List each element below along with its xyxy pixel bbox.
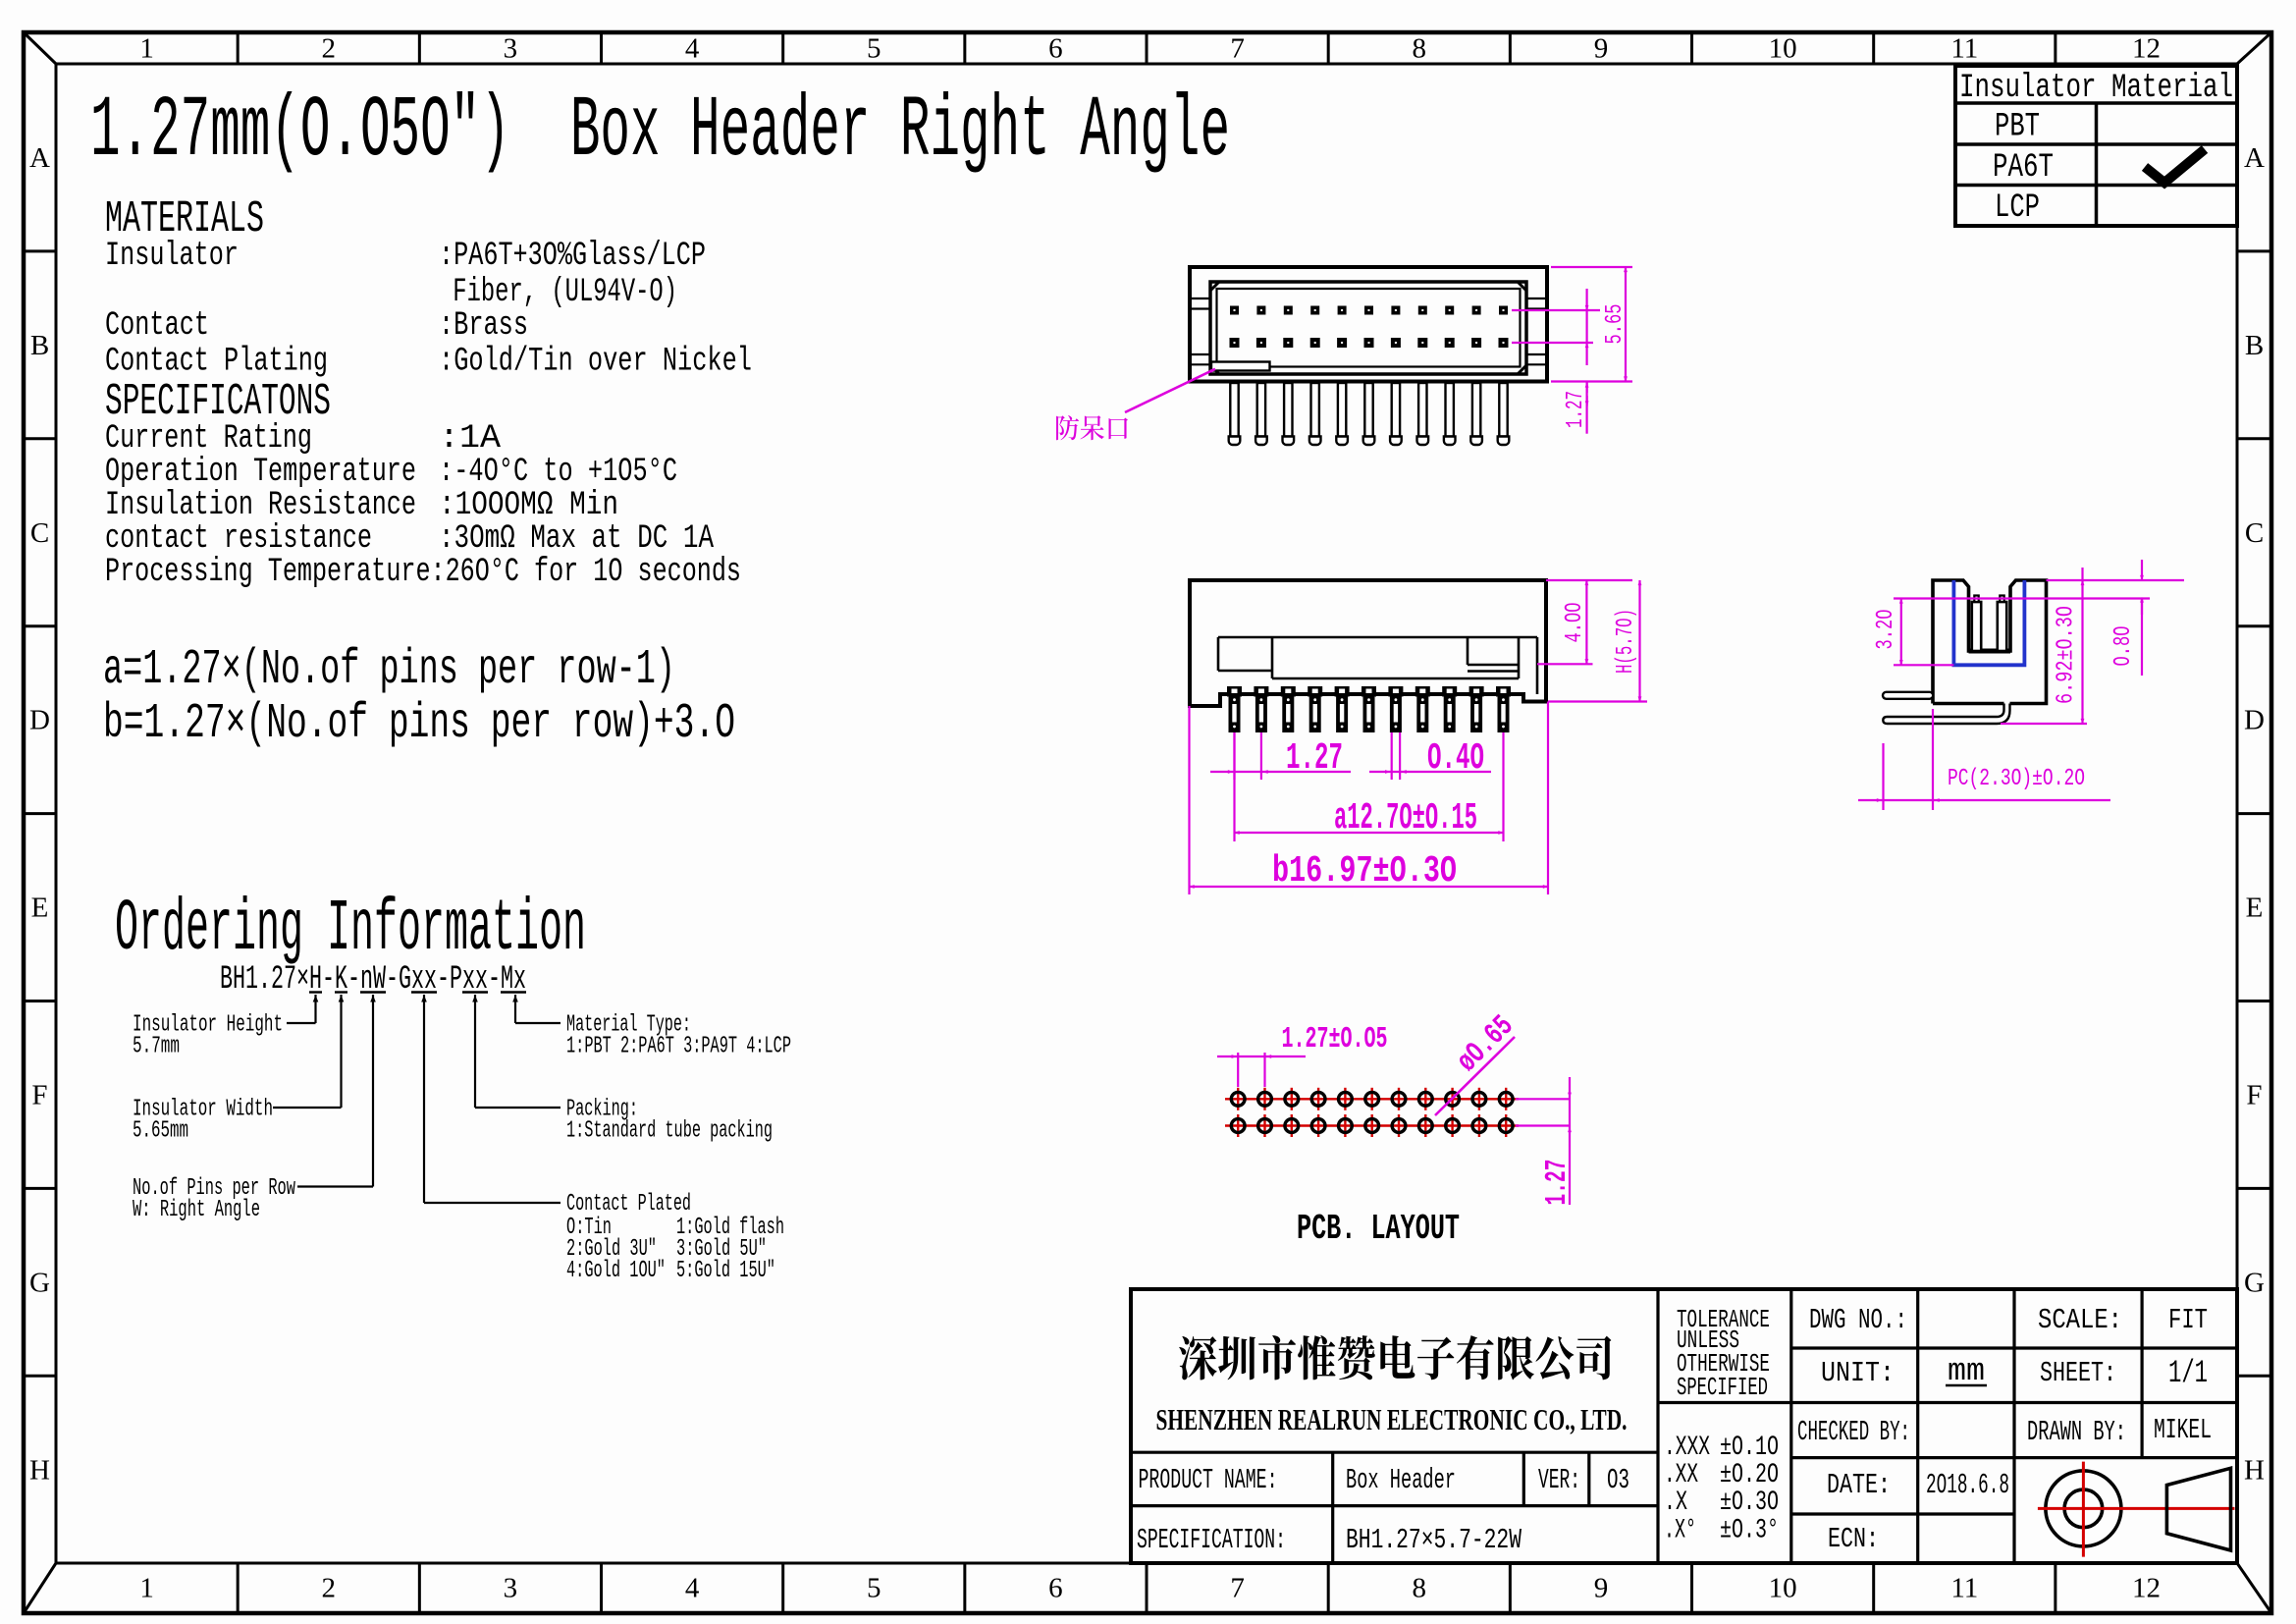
svg-text:1.27: 1.27 <box>1286 737 1343 780</box>
svg-text:SPECIFIED: SPECIFIED <box>1677 1373 1768 1402</box>
svg-text:SCALE:: SCALE: <box>2038 1304 2122 1336</box>
svg-text:8: 8 <box>1413 1573 1427 1604</box>
svg-text:B: B <box>2245 330 2264 361</box>
svg-text:Insulator: Insulator <box>105 238 239 275</box>
svg-text:1:Standard tube packing: 1:Standard tube packing <box>566 1118 773 1145</box>
svg-text:H: H <box>29 1454 50 1486</box>
svg-text:D: D <box>2244 705 2265 736</box>
svg-text:Contact: Contact <box>105 307 209 345</box>
svg-text:BH1.27×5.7-22W: BH1.27×5.7-22W <box>1346 1524 1522 1556</box>
svg-text:.XXX: .XXX <box>1664 1433 1710 1463</box>
svg-text:DATE:: DATE: <box>1827 1469 1891 1501</box>
svg-text:10: 10 <box>1769 33 1797 65</box>
svg-text:1: 1 <box>139 1573 154 1604</box>
svg-text:CHECKED BY:: CHECKED BY: <box>1797 1416 1910 1448</box>
svg-text:9: 9 <box>1594 1573 1609 1604</box>
svg-text:E: E <box>31 893 49 924</box>
svg-text:11: 11 <box>1950 1573 1978 1604</box>
svg-text:5: 5 <box>867 33 881 65</box>
svg-text:±O.3O: ±O.3O <box>1720 1488 1779 1518</box>
svg-text:PA6T: PA6T <box>1993 149 2054 187</box>
svg-text:2: 2 <box>322 1573 337 1604</box>
svg-text:UNIT:: UNIT: <box>1821 1357 1895 1389</box>
svg-text::Gold/Tin over Nickel: :Gold/Tin over Nickel <box>439 343 752 380</box>
svg-text:Insulation Resistance: Insulation Resistance <box>105 487 416 524</box>
svg-text:3: 3 <box>504 33 518 65</box>
svg-text:PBT: PBT <box>1995 109 2040 146</box>
svg-text:11: 11 <box>1950 33 1978 65</box>
svg-text:Processing Temperature:26O°C f: Processing Temperature:26O°C for 1O seco… <box>105 554 741 591</box>
svg-text:contact resistance: contact resistance <box>105 520 372 558</box>
svg-text:Box Header: Box Header <box>1346 1464 1456 1496</box>
svg-text:MIKEL: MIKEL <box>2154 1414 2212 1446</box>
svg-text:9: 9 <box>1594 33 1609 65</box>
svg-text:PC(2.3O)±O.2O: PC(2.3O)±O.2O <box>1948 766 2085 792</box>
svg-text:.XX: .XX <box>1664 1460 1698 1490</box>
svg-text:2O18.6.8: 2O18.6.8 <box>1926 1469 2009 1501</box>
svg-text:SPECIFICATION:: SPECIFICATION: <box>1137 1524 1286 1556</box>
svg-text:8: 8 <box>1413 33 1427 65</box>
svg-text:G: G <box>29 1267 50 1298</box>
svg-text:D: D <box>29 705 50 736</box>
svg-text:Fiber, (UL94V-O): Fiber, (UL94V-O) <box>439 274 677 311</box>
svg-text:Contact Plated: Contact Plated <box>566 1191 691 1218</box>
svg-text:b16.97±O.3O: b16.97±O.3O <box>1272 850 1457 893</box>
svg-text:W: Right Angle: W: Right Angle <box>133 1197 260 1223</box>
svg-text:3.2O: 3.2O <box>1873 610 1899 650</box>
svg-text::1A: :1A <box>439 420 502 458</box>
svg-text:1.27±O.O5: 1.27±O.O5 <box>1282 1022 1388 1056</box>
svg-text:DWG NO.:: DWG NO.: <box>1809 1304 1907 1336</box>
svg-text:7: 7 <box>1230 33 1245 65</box>
svg-text:1/1: 1/1 <box>2168 1355 2208 1391</box>
svg-text:2: 2 <box>322 33 337 65</box>
svg-text:3: 3 <box>504 1573 518 1604</box>
svg-text:Operation Temperature: Operation Temperature <box>105 454 416 491</box>
svg-text:4:Gold 1OU": 4:Gold 1OU" <box>566 1258 666 1284</box>
svg-text:H(5.7O): H(5.7O) <box>1613 609 1639 674</box>
svg-text:B: B <box>30 330 49 361</box>
svg-text:ECN:: ECN: <box>1828 1523 1879 1555</box>
svg-text:6: 6 <box>1048 1573 1063 1604</box>
svg-text:Ordering Information: Ordering Information <box>115 889 586 971</box>
svg-text::1OOOMΩ Min: :1OOOMΩ Min <box>439 487 618 524</box>
svg-text:O.8O: O.8O <box>2110 626 2137 667</box>
svg-text:±O.3°: ±O.3° <box>1720 1516 1779 1546</box>
svg-text:mm: mm <box>1948 1353 1985 1389</box>
svg-text:.X: .X <box>1664 1488 1687 1518</box>
svg-text:C: C <box>30 517 49 549</box>
svg-text:Insulator Material: Insulator Material <box>1959 70 2233 107</box>
svg-text:PRODUCT NAME:: PRODUCT NAME: <box>1139 1464 1278 1496</box>
svg-text:a=1.27×(No.of pins per row-1): a=1.27×(No.of pins per row-1) <box>103 642 675 698</box>
svg-text:5:Gold 15U": 5:Gold 15U" <box>676 1258 775 1284</box>
svg-text:10: 10 <box>1769 1573 1797 1604</box>
svg-text:1.27mm(O.O5O") Box Header Rig: 1.27mm(O.O5O") Box Header Right Angle <box>90 83 1230 181</box>
svg-text:5.65: 5.65 <box>1602 304 1629 345</box>
svg-text:1: 1 <box>139 33 154 65</box>
svg-text:.X°: .X° <box>1664 1516 1696 1546</box>
svg-text:O3: O3 <box>1607 1464 1629 1496</box>
svg-text:6: 6 <box>1048 33 1063 65</box>
svg-text:PCB. LAYOUT: PCB. LAYOUT <box>1297 1209 1460 1249</box>
svg-text:b=1.27×(No.of pins per row)+3.: b=1.27×(No.of pins per row)+3.O <box>103 696 735 752</box>
svg-text:4.OO: 4.OO <box>1562 603 1588 643</box>
svg-text::3OmΩ Max at DC 1A: :3OmΩ Max at DC 1A <box>439 520 714 558</box>
svg-text:1.27: 1.27 <box>1540 1160 1575 1206</box>
svg-text:Contact Plating: Contact Plating <box>105 343 328 380</box>
svg-text:±O.2O: ±O.2O <box>1720 1460 1779 1490</box>
svg-text:A: A <box>2244 142 2265 174</box>
svg-text:6.92±O.3O: 6.92±O.3O <box>2054 606 2080 704</box>
svg-text:O.4O: O.4O <box>1427 737 1484 780</box>
svg-text:5: 5 <box>867 1573 881 1604</box>
svg-text:5.7mm: 5.7mm <box>133 1034 180 1060</box>
svg-text:1.27: 1.27 <box>1563 391 1589 428</box>
svg-text:4: 4 <box>685 1573 700 1604</box>
svg-text:DRAWN BY:: DRAWN BY: <box>2027 1416 2126 1448</box>
svg-text:FIT: FIT <box>2168 1304 2208 1336</box>
svg-text:a12.7O±O.15: a12.7O±O.15 <box>1334 797 1477 839</box>
svg-text::-4O°C to +1O5°C: :-4O°C to +1O5°C <box>439 454 677 491</box>
svg-text::Brass: :Brass <box>439 307 528 345</box>
svg-text:E: E <box>2246 893 2264 924</box>
svg-text:12: 12 <box>2132 33 2161 65</box>
svg-text:4: 4 <box>685 33 700 65</box>
svg-text:F: F <box>2246 1079 2262 1110</box>
svg-text:Current Rating: Current Rating <box>105 420 312 458</box>
svg-text:1:PBT 2:PA6T 3:PA9T 4:LCP: 1:PBT 2:PA6T 3:PA9T 4:LCP <box>566 1034 791 1060</box>
svg-text:12: 12 <box>2132 1573 2161 1604</box>
svg-text:VER:: VER: <box>1538 1464 1580 1496</box>
svg-text:SHEET:: SHEET: <box>2040 1357 2116 1389</box>
svg-text::PA6T+3O%Glass/LCP: :PA6T+3O%Glass/LCP <box>439 238 706 275</box>
svg-text:LCP: LCP <box>1995 189 2040 227</box>
svg-text:A: A <box>29 142 50 174</box>
svg-text:SHENZHEN REALRUN ELECTRONIC CO: SHENZHEN REALRUN ELECTRONIC CO., LTD. <box>1156 1402 1628 1436</box>
svg-text:5.65mm: 5.65mm <box>133 1118 188 1145</box>
svg-text:±O.1O: ±O.1O <box>1720 1433 1779 1463</box>
svg-text:F: F <box>31 1079 47 1110</box>
svg-text:H: H <box>2244 1454 2265 1486</box>
svg-text:C: C <box>2245 517 2264 549</box>
svg-text:G: G <box>2244 1267 2265 1298</box>
svg-text:7: 7 <box>1230 1573 1245 1604</box>
